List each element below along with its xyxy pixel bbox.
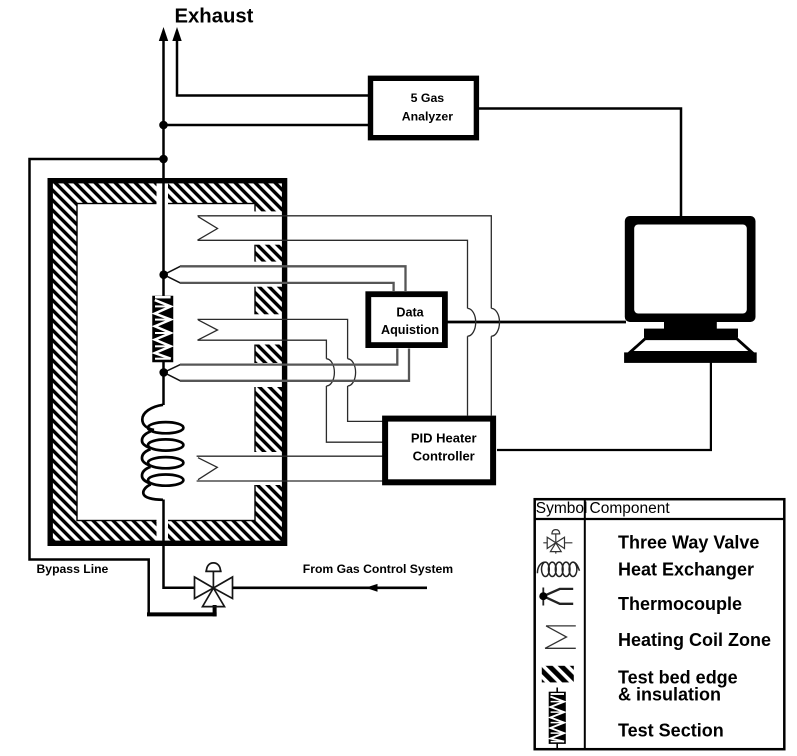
- svg-text:Symbol: Symbol: [536, 500, 588, 517]
- svg-text:Component: Component: [590, 500, 671, 517]
- svg-text:5 Gas: 5 Gas: [411, 91, 445, 105]
- svg-text:Analyzer: Analyzer: [402, 110, 453, 124]
- svg-text:Three Way Valve: Three Way Valve: [618, 533, 759, 553]
- svg-text:Thermocouple: Thermocouple: [618, 594, 742, 614]
- svg-text:Controller: Controller: [413, 448, 475, 463]
- svg-text:Heating Coil Zone: Heating Coil Zone: [618, 630, 771, 650]
- svg-text:Bypass Line: Bypass Line: [37, 562, 109, 576]
- svg-text:Aquistion: Aquistion: [381, 323, 439, 337]
- svg-text:Data: Data: [396, 305, 424, 319]
- svg-text:Exhaust: Exhaust: [175, 6, 254, 28]
- svg-text:Test Section: Test Section: [618, 720, 724, 740]
- svg-text:PID Heater: PID Heater: [411, 431, 477, 446]
- svg-text:& insulation: & insulation: [618, 685, 721, 705]
- svg-text:Heat Exchanger: Heat Exchanger: [618, 559, 754, 579]
- svg-text:From Gas Control System: From Gas Control System: [303, 562, 454, 576]
